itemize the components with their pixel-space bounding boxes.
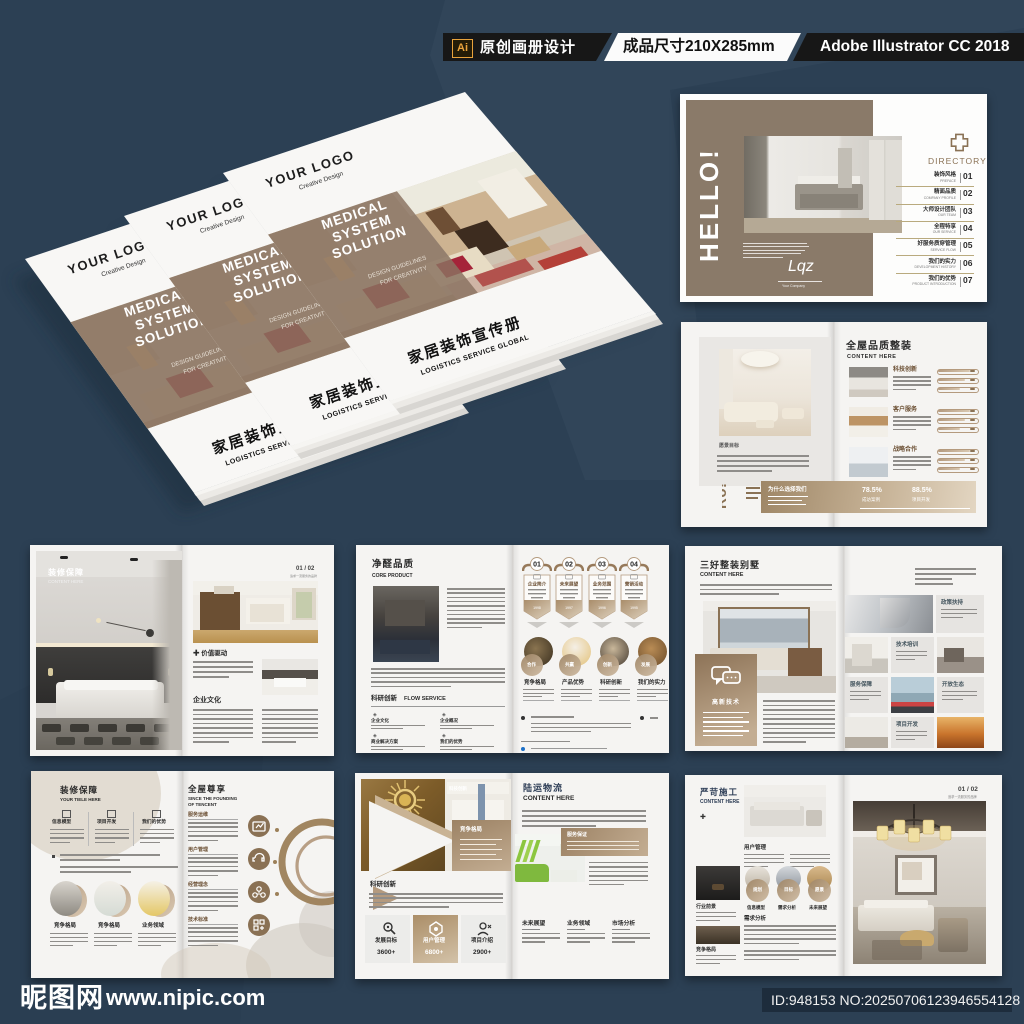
svg-text:1997: 1997 xyxy=(565,606,573,610)
svg-text:Ro!: Ro! xyxy=(722,483,730,510)
svg-text:1995: 1995 xyxy=(630,606,638,610)
svg-text:01: 01 xyxy=(533,562,541,569)
svg-text:营销活动: 营销活动 xyxy=(625,581,644,588)
svg-text:02: 02 xyxy=(565,562,573,569)
svg-text:1998: 1998 xyxy=(533,606,541,610)
svg-text:03: 03 xyxy=(598,562,606,569)
svg-text:企业简介: 企业简介 xyxy=(527,581,547,588)
svg-text:未来展望: 未来展望 xyxy=(559,581,579,588)
svg-text:1996: 1996 xyxy=(598,606,606,610)
svg-text:业务范围: 业务范围 xyxy=(592,581,611,588)
svg-text:04: 04 xyxy=(630,562,638,569)
